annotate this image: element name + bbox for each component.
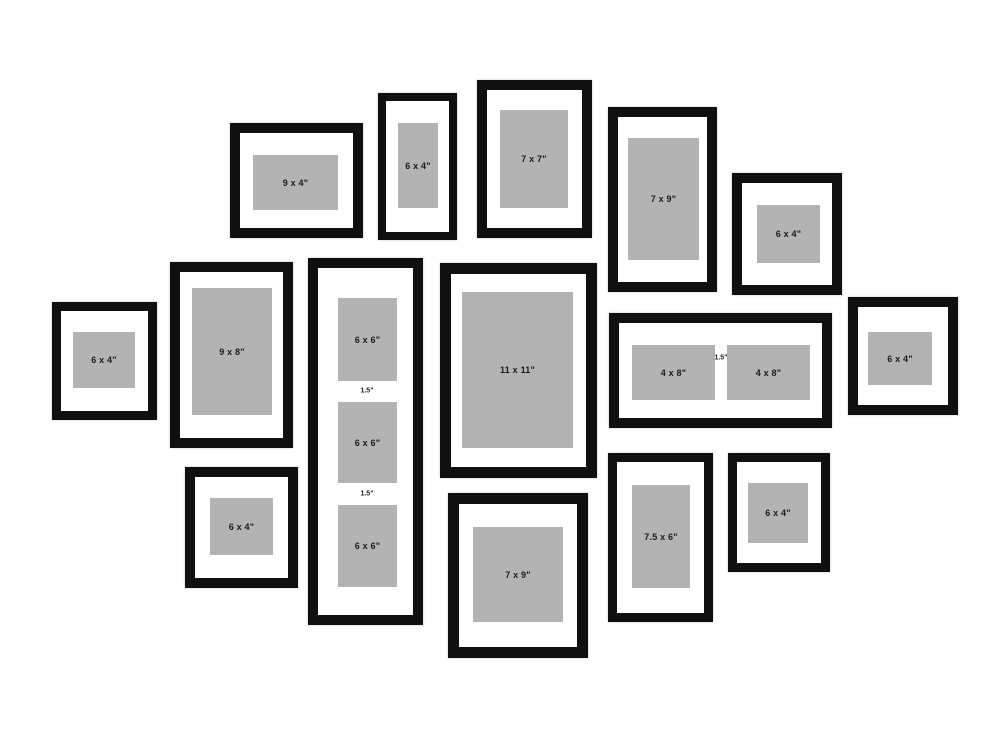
frame-7-5x6-bottom: 7.5 x 6" — [608, 453, 713, 622]
photo-size-label: 6 x 6" — [355, 335, 380, 345]
spacer-width-label: 1.5" — [714, 355, 727, 362]
photo-placeholder: 6 x 4" — [748, 483, 808, 543]
frame-4x8-double: 4 x 8"4 x 8"1.5" — [609, 313, 832, 428]
photo-size-label: 6 x 6" — [355, 438, 380, 448]
photo-placeholder: 11 x 11" — [462, 292, 573, 448]
photo-placeholder: 6 x 4" — [868, 332, 932, 385]
photo-size-label: 4 x 8" — [756, 368, 781, 378]
photo-placeholder: 7 x 9" — [473, 527, 563, 622]
photo-size-label: 9 x 8" — [219, 347, 244, 357]
photo-placeholder: 6 x 6" — [338, 402, 397, 483]
frame-6x4-mid-right: 6 x 4" — [848, 297, 958, 415]
frame-7x7-top: 7 x 7" — [477, 80, 592, 238]
photo-size-label: 6 x 6" — [355, 541, 380, 551]
frame-6x6-triple-column: 6 x 6"6 x 6"6 x 6"1.5"1.5" — [308, 258, 423, 625]
frame-7x9-bottom-center: 7 x 9" — [448, 493, 588, 658]
photo-placeholder: 9 x 8" — [192, 288, 272, 415]
frame-6x4-bottom-left: 6 x 4" — [185, 467, 298, 588]
photo-placeholder: 7.5 x 6" — [632, 485, 690, 588]
frame-11x11-center: 11 x 11" — [440, 263, 597, 478]
photo-size-label: 6 x 4" — [765, 508, 790, 518]
photo-placeholder: 6 x 6" — [338, 505, 397, 587]
gallery-wall: 9 x 4"6 x 4"7 x 7"7 x 9"6 x 4"6 x 4"9 x … — [0, 0, 1000, 750]
spacer-width-label: 1.5" — [360, 491, 373, 498]
spacer-width-label: 1.5" — [360, 388, 373, 395]
photo-size-label: 4 x 8" — [661, 368, 686, 378]
photo-placeholder: 6 x 6" — [338, 298, 397, 381]
photo-placeholder: 6 x 4" — [73, 332, 135, 388]
photo-size-label: 11 x 11" — [500, 365, 535, 375]
photo-size-label: 7 x 9" — [505, 570, 530, 580]
photo-size-label: 7 x 9" — [651, 194, 676, 204]
photo-size-label: 7.5 x 6" — [644, 532, 677, 542]
photo-placeholder: 6 x 4" — [398, 123, 438, 208]
photo-placeholder: 9 x 4" — [253, 155, 338, 210]
photo-placeholder: 6 x 4" — [757, 205, 820, 263]
photo-size-label: 6 x 4" — [776, 229, 801, 239]
photo-size-label: 7 x 7" — [521, 154, 546, 164]
photo-size-label: 6 x 4" — [229, 522, 254, 532]
frame-6x4-top-right: 6 x 4" — [732, 173, 842, 295]
frame-7x9-top: 7 x 9" — [608, 107, 717, 292]
photo-placeholder: 4 x 8" — [727, 345, 810, 400]
photo-size-label: 6 x 4" — [91, 355, 116, 365]
photo-size-label: 9 x 4" — [283, 178, 308, 188]
frame-6x4-top-portrait: 6 x 4" — [378, 93, 457, 240]
frame-9x4-top: 9 x 4" — [230, 123, 363, 238]
photo-placeholder: 6 x 4" — [210, 498, 273, 555]
photo-size-label: 6 x 4" — [887, 354, 912, 364]
photo-placeholder: 7 x 7" — [500, 110, 568, 208]
photo-placeholder: 4 x 8" — [632, 345, 715, 400]
frame-6x4-mid-left: 6 x 4" — [52, 302, 157, 420]
photo-size-label: 6 x 4" — [405, 161, 430, 171]
frame-9x8-mid-left: 9 x 8" — [170, 262, 293, 448]
frame-6x4-bottom-right: 6 x 4" — [728, 453, 830, 572]
photo-placeholder: 7 x 9" — [628, 138, 699, 260]
